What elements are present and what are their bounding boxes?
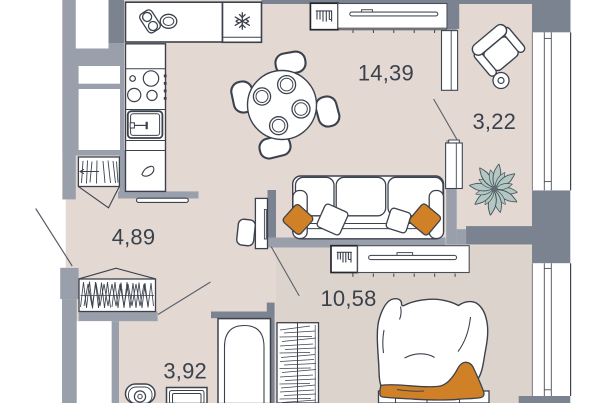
svg-text:3,22: 3,22 [472,109,516,134]
svg-text:4,89: 4,89 [112,224,156,249]
svg-text:3,92: 3,92 [163,358,207,383]
svg-text:14,39: 14,39 [358,61,414,86]
svg-text:10,58: 10,58 [320,286,376,311]
